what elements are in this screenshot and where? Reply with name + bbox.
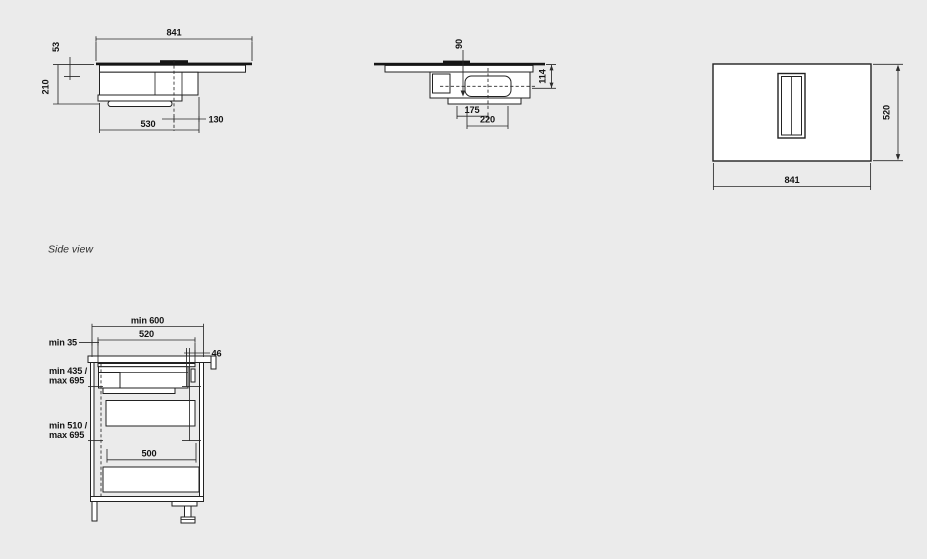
profile-inner-box — [433, 74, 451, 93]
profile-underframe — [385, 65, 533, 72]
install-dim-hob-width-label: 520 — [139, 329, 154, 339]
front-body — [100, 72, 199, 95]
profile-dim-duct-drop-label: 90 — [454, 39, 464, 49]
plan-view: 520 841 — [713, 64, 903, 190]
front-dim-width-label: 841 — [167, 28, 182, 38]
install-hob-flange — [103, 388, 175, 394]
install-cabinet-bottom — [91, 497, 204, 502]
front-dim-total-height-lines — [53, 65, 100, 104]
side-view-label: Side view — [48, 244, 94, 256]
install-foot-plate — [172, 502, 197, 507]
install-dim-drawer-width-label: 500 — [142, 449, 157, 459]
front-dim-duct-offset-lines — [162, 116, 206, 122]
front-dim-top-height-label: 53 — [51, 42, 61, 52]
install-foot-stem — [185, 506, 192, 517]
profile-dim-inlet-depth-label: 114 — [538, 68, 548, 83]
install-plenum-box — [106, 401, 195, 427]
front-view: 841 53 210 530 130 — [41, 28, 253, 134]
install-dim-cabinet-width-label: min 600 — [131, 316, 164, 326]
front-bottom-tray — [108, 101, 172, 107]
plan-dim-depth-label: 520 — [882, 105, 892, 120]
profile-extractor-grille — [443, 61, 470, 65]
front-dim-body-width-label: 530 — [141, 119, 156, 129]
plan-dim-width-label: 841 — [785, 175, 800, 185]
install-hob-sub-box — [99, 373, 121, 389]
front-dim-top-height-lines — [53, 57, 94, 80]
install-cabinet-rail — [191, 369, 195, 382]
profile-housing-step — [448, 98, 521, 104]
install-dim-left-gap-lines — [79, 340, 99, 346]
front-dim-width-lines — [96, 36, 252, 61]
install-left-leg — [92, 502, 97, 522]
install-cabinet-left-wall — [91, 363, 95, 497]
install-drawer-box — [103, 467, 199, 492]
install-upper-clearance-label-2: max 695 — [49, 376, 84, 386]
install-upper-clearance-label-1: min 435 / — [49, 366, 88, 376]
profile-view: 90 114 175 220 — [374, 39, 556, 129]
technical-drawing-page: 841 53 210 530 130 90 114 175 220 — [0, 0, 927, 559]
profile-dim-outlet-length-label: 220 — [480, 115, 495, 125]
front-dim-total-height-label: 210 — [41, 80, 51, 95]
install-dim-right-gap-label: 46 — [212, 349, 222, 359]
install-cabinet-right-wall — [200, 363, 204, 497]
install-lower-clearance-label-1: min 510 / — [49, 421, 88, 431]
install-dim-left-gap-label: min 35 — [49, 338, 77, 348]
install-dim-right-gap-lines — [184, 350, 210, 356]
install-view: min 600 520 min 35 46 min 435 / max 695 … — [49, 316, 222, 524]
front-flange — [98, 95, 182, 101]
install-foot-base — [181, 517, 195, 523]
install-worktop — [88, 356, 216, 363]
install-lower-clearance-label-2: max 695 — [49, 430, 84, 440]
front-underframe — [100, 65, 246, 72]
drawing-canvas: 841 53 210 530 130 90 114 175 220 — [0, 0, 927, 559]
front-dim-duct-offset-label: 130 — [209, 115, 224, 125]
